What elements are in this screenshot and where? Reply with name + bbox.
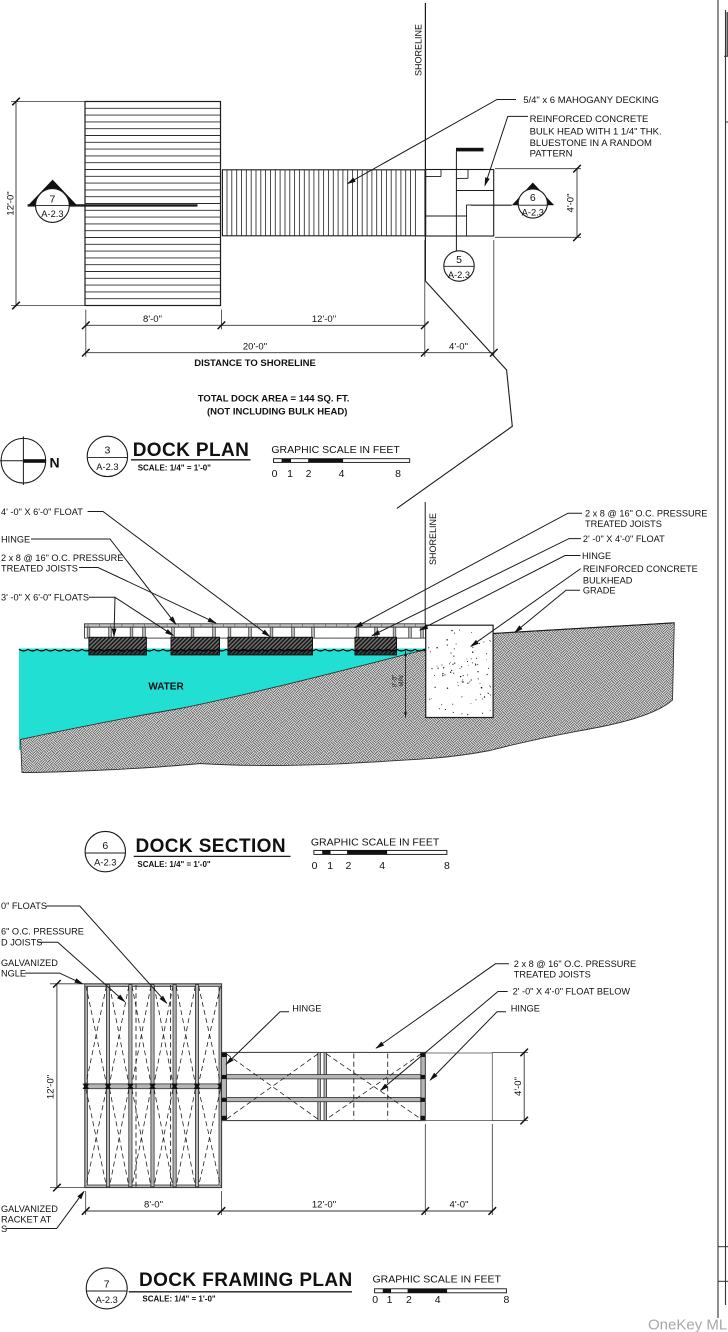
svg-text:A-2.3: A-2.3 bbox=[94, 857, 116, 867]
svg-text:2: 2 bbox=[406, 1294, 412, 1306]
svg-text:HINGE: HINGE bbox=[582, 551, 611, 561]
svg-text:DOCK SECTION: DOCK SECTION bbox=[136, 836, 286, 857]
svg-text:2' -0" X 4'-0" FLOAT: 2' -0" X 4'-0" FLOAT bbox=[583, 534, 665, 544]
svg-text:SCALE: 1/4" = 1'-0": SCALE: 1/4" = 1'-0" bbox=[142, 1295, 215, 1304]
svg-text:12'-0": 12'-0" bbox=[312, 314, 336, 325]
svg-text:8: 8 bbox=[395, 468, 401, 480]
svg-text:HINGE: HINGE bbox=[511, 1004, 540, 1014]
svg-text:12'-0": 12'-0" bbox=[6, 191, 17, 215]
svg-text:BULK HEAD WITH 1 1/4" THK.: BULK HEAD WITH 1 1/4" THK. bbox=[530, 126, 662, 137]
svg-text:HINGE: HINGE bbox=[1, 535, 30, 545]
svg-text:A-2.3: A-2.3 bbox=[96, 462, 118, 472]
svg-text:A-2.3: A-2.3 bbox=[41, 209, 63, 219]
svg-text:1: 1 bbox=[387, 1294, 393, 1306]
svg-text:BULKHEAD: BULKHEAD bbox=[583, 576, 633, 586]
svg-text:DOCK FRAMING PLAN: DOCK FRAMING PLAN bbox=[139, 1270, 353, 1291]
svg-text:SHORELINE: SHORELINE bbox=[428, 513, 438, 565]
svg-text:4'-0": 4'-0" bbox=[450, 1200, 469, 1211]
svg-text:5/4" x 6 MAHOGANY DECKING: 5/4" x 6 MAHOGANY DECKING bbox=[523, 95, 659, 106]
svg-text:3: 3 bbox=[104, 444, 110, 456]
svg-text:0: 0 bbox=[372, 1294, 378, 1306]
svg-text:PATTERN: PATTERN bbox=[530, 149, 573, 160]
svg-text:4'-0": 4'-0" bbox=[566, 194, 577, 213]
svg-text:2: 2 bbox=[306, 468, 312, 480]
svg-text:SHORELINE: SHORELINE bbox=[414, 24, 424, 76]
svg-text:REINFORCED CONCRETE: REINFORCED CONCRETE bbox=[583, 564, 698, 574]
svg-text:4' -0" X 6'-0" FLOAT: 4' -0" X 6'-0" FLOAT bbox=[1, 507, 83, 517]
svg-text:20'-0": 20'-0" bbox=[243, 341, 267, 352]
svg-text:1: 1 bbox=[287, 468, 293, 480]
svg-text:6" O.C. PRESSURE: 6" O.C. PRESSURE bbox=[1, 927, 84, 937]
svg-text:REINFORCED CONCRETE: REINFORCED CONCRETE bbox=[530, 114, 649, 125]
svg-text:8: 8 bbox=[503, 1294, 509, 1306]
svg-text:OneKey MLS: OneKey MLS bbox=[648, 1317, 728, 1332]
svg-text:GALVANIZED: GALVANIZED bbox=[1, 1204, 58, 1214]
svg-text:A-2.3: A-2.3 bbox=[522, 207, 544, 217]
svg-text:8'-0": 8'-0" bbox=[143, 314, 162, 325]
svg-text:GRADE: GRADE bbox=[583, 586, 616, 596]
svg-text:7: 7 bbox=[104, 1278, 110, 1290]
svg-text:2: 2 bbox=[345, 860, 351, 872]
svg-text:SCALE: 1/4" = 1'-0": SCALE: 1/4" = 1'-0" bbox=[138, 464, 211, 473]
svg-text:HINGE: HINGE bbox=[292, 1004, 321, 1014]
svg-text:6: 6 bbox=[530, 192, 536, 204]
svg-text:GRAPHIC SCALE IN FEET: GRAPHIC SCALE IN FEET bbox=[373, 1274, 502, 1286]
svg-text:A-2.3: A-2.3 bbox=[96, 1295, 118, 1305]
svg-text:2 x 8 @ 16" O.C. PRESSURE: 2 x 8 @ 16" O.C. PRESSURE bbox=[1, 553, 123, 563]
svg-text:GRAPHIC SCALE IN FEET: GRAPHIC SCALE IN FEET bbox=[311, 836, 440, 848]
svg-text:D JOISTS: D JOISTS bbox=[1, 938, 42, 948]
svg-text:DOCK PLAN: DOCK PLAN bbox=[133, 440, 250, 461]
svg-text:TREATED JOISTS: TREATED JOISTS bbox=[585, 519, 662, 529]
svg-text:12'-0": 12'-0" bbox=[312, 1200, 336, 1211]
svg-text:GRAPHIC SCALE IN FEET: GRAPHIC SCALE IN FEET bbox=[271, 444, 400, 456]
svg-text:0: 0 bbox=[272, 468, 278, 480]
svg-text:2' -0" X 4'-0" FLOAT BELOW: 2' -0" X 4'-0" FLOAT BELOW bbox=[513, 987, 631, 997]
svg-text:2 x 8 @ 16" O.C. PRESSURE: 2 x 8 @ 16" O.C. PRESSURE bbox=[514, 959, 636, 969]
svg-text:8'-0": 8'-0" bbox=[144, 1200, 163, 1211]
svg-text:DISTANCE TO SHORELINE: DISTANCE TO SHORELINE bbox=[194, 358, 316, 369]
svg-text:0: 0 bbox=[312, 860, 318, 872]
svg-text:(NOT INCLUDING BULK HEAD): (NOT INCLUDING BULK HEAD) bbox=[207, 406, 347, 417]
svg-text:TREATED JOISTS: TREATED JOISTS bbox=[1, 564, 78, 574]
svg-text:NGLE: NGLE bbox=[1, 969, 26, 979]
svg-text:SCALE: 1/4" = 1'-0": SCALE: 1/4" = 1'-0" bbox=[137, 860, 210, 869]
svg-text:WATER: WATER bbox=[148, 682, 184, 693]
svg-text:5: 5 bbox=[456, 254, 462, 266]
svg-text:4: 4 bbox=[379, 860, 385, 872]
svg-text:0" FLOATS: 0" FLOATS bbox=[1, 901, 47, 911]
svg-text:3' -0" X 6'-0" FLOATS: 3' -0" X 6'-0" FLOATS bbox=[1, 593, 89, 603]
svg-text:TOTAL DOCK AREA = 144 SQ. FT.: TOTAL DOCK AREA = 144 SQ. FT. bbox=[198, 393, 350, 404]
svg-text:RACKET AT: RACKET AT bbox=[1, 1215, 52, 1225]
svg-text:N: N bbox=[50, 454, 60, 470]
svg-text:8: 8 bbox=[444, 860, 450, 872]
svg-text:1: 1 bbox=[327, 860, 333, 872]
svg-text:GALVANIZED: GALVANIZED bbox=[1, 958, 58, 968]
svg-text:TREATED JOISTS: TREATED JOISTS bbox=[514, 970, 591, 980]
svg-text:MIN: MIN bbox=[398, 675, 405, 686]
svg-text:12'-0": 12'-0" bbox=[46, 1075, 57, 1099]
svg-text:4'-0": 4'-0" bbox=[513, 1077, 524, 1096]
svg-text:A-2.3: A-2.3 bbox=[448, 270, 470, 280]
svg-text:4'-0": 4'-0" bbox=[449, 341, 468, 352]
svg-text:4: 4 bbox=[435, 1294, 441, 1306]
svg-text:7: 7 bbox=[49, 193, 55, 205]
svg-text:6: 6 bbox=[102, 840, 108, 852]
svg-text:4: 4 bbox=[339, 468, 345, 480]
svg-text:2 x 8 @ 16" O.C. PRESSURE: 2 x 8 @ 16" O.C. PRESSURE bbox=[585, 509, 707, 519]
